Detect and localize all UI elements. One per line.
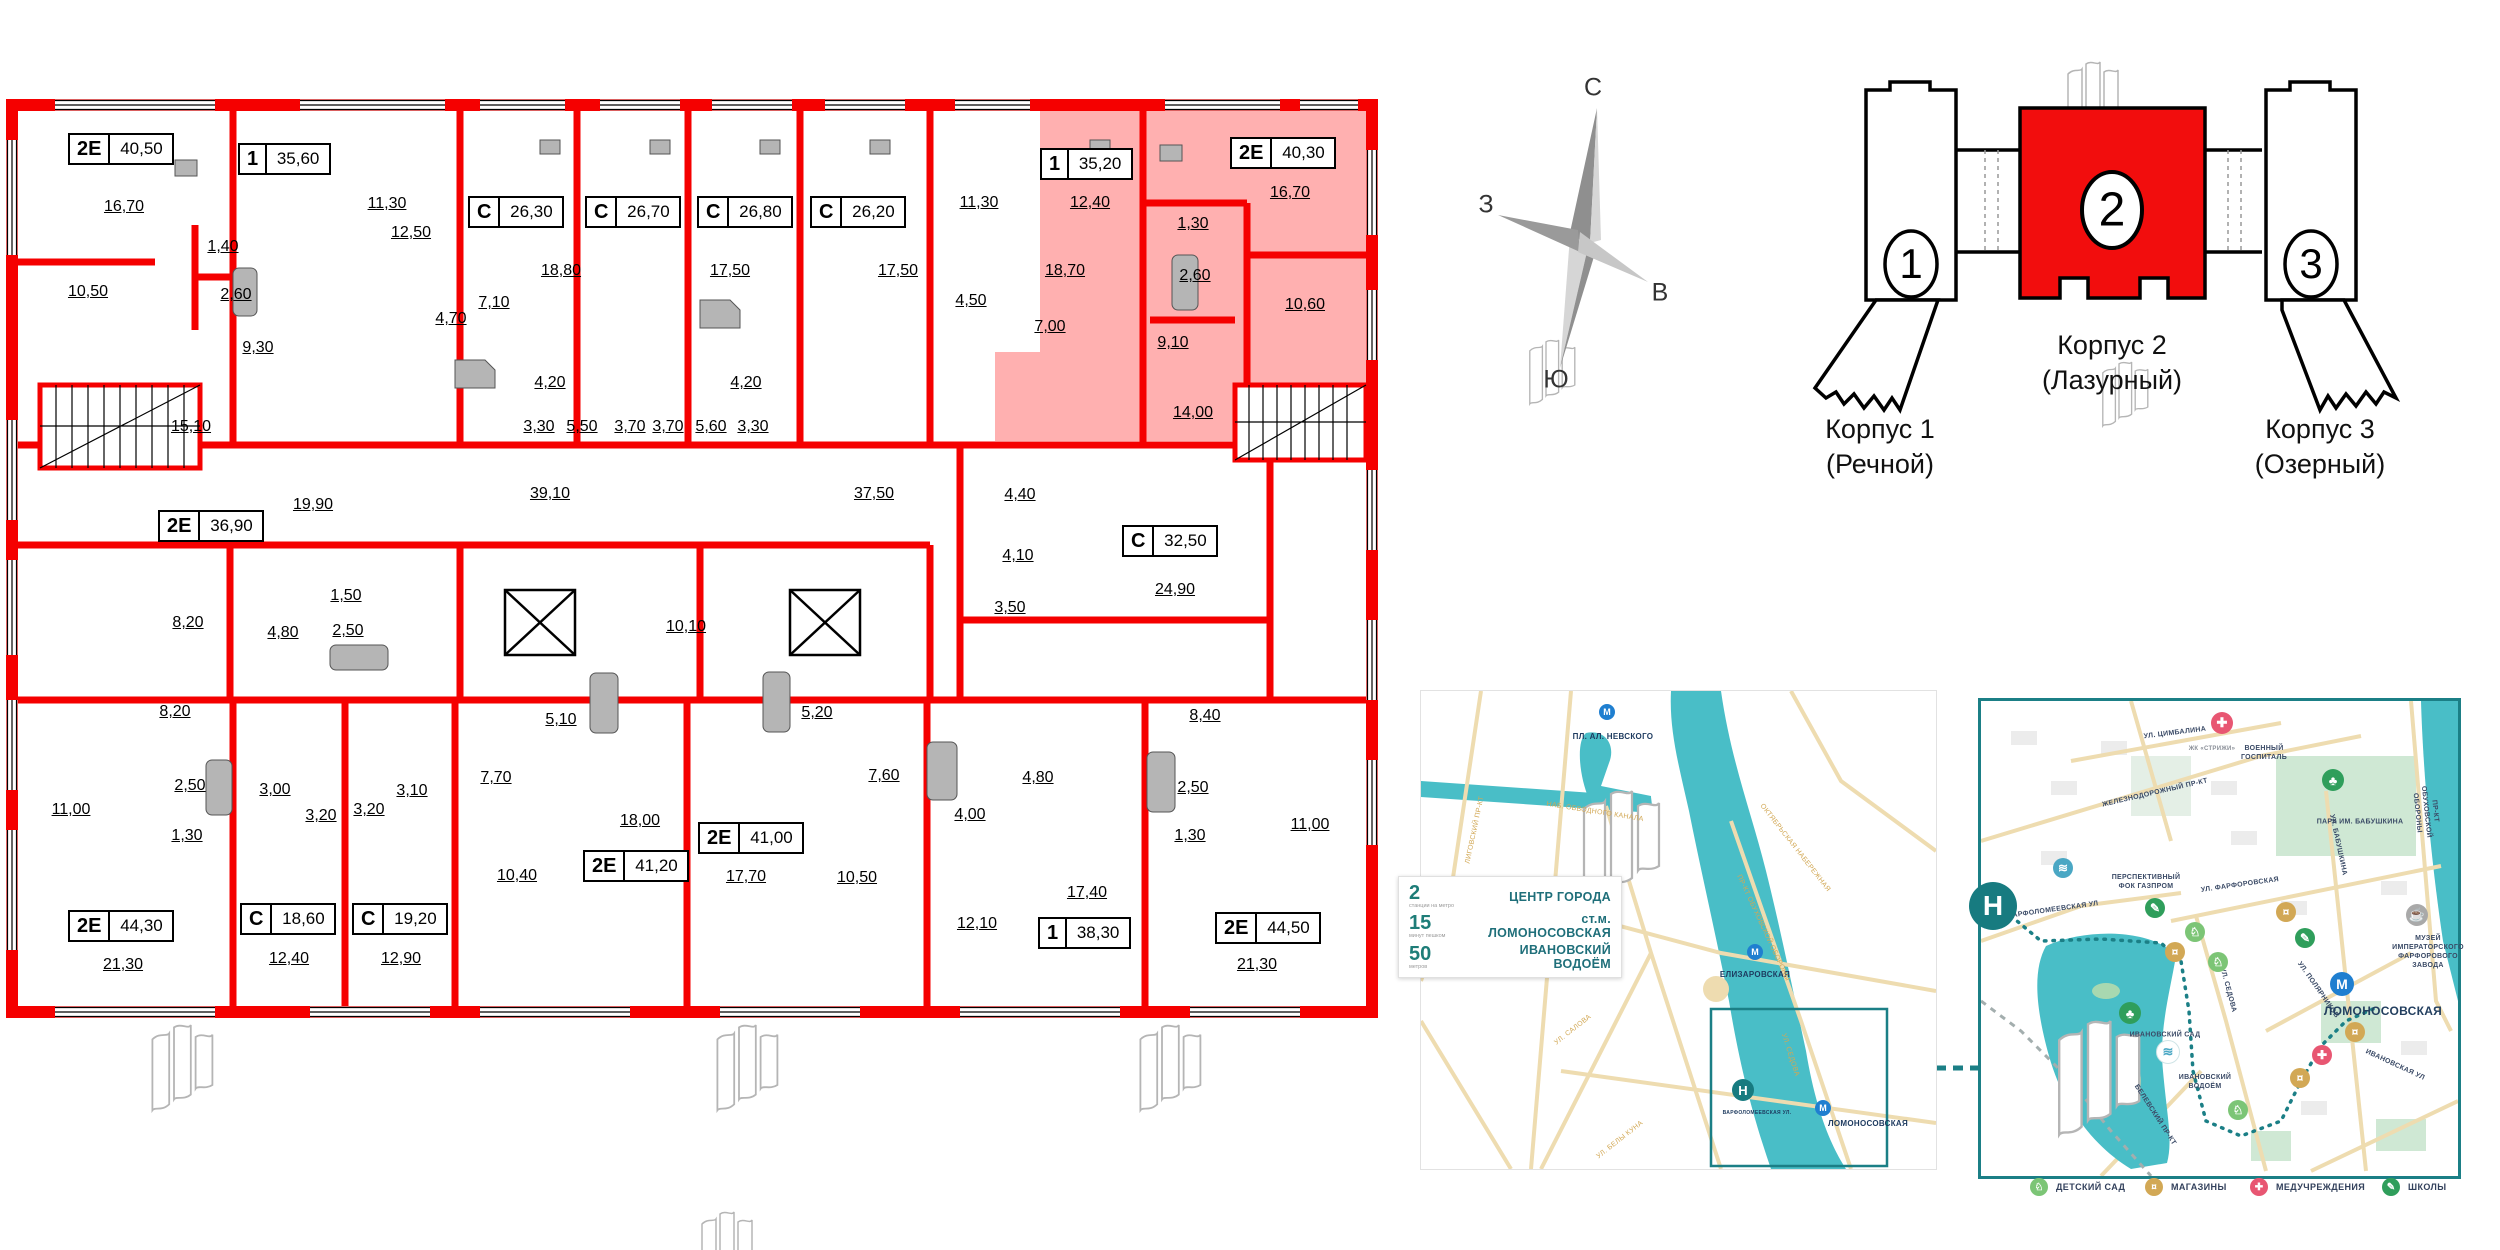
room-area-label: 17,40	[1067, 884, 1107, 902]
unit-tag-С-26,70[interactable]: С26,70	[585, 196, 681, 228]
compass-icon	[1498, 108, 1648, 368]
room-area-label: 5,60	[695, 418, 726, 436]
unit-area: 35,60	[267, 145, 329, 173]
room-area-label: 5,10	[545, 711, 576, 729]
poi-kind-icon[interactable]: ♘	[2185, 922, 2205, 942]
unit-tag-1-35,60[interactable]: 135,60	[238, 143, 331, 175]
poi-med-icon[interactable]: ✚	[2211, 712, 2233, 734]
unit-tag-С-26,20[interactable]: С26,20	[810, 196, 906, 228]
unit-area: 19,20	[384, 905, 446, 933]
room-area-label: 21,30	[103, 956, 143, 974]
legend-label: МЕДУЧРЕЖДЕНИЯ	[2276, 1182, 2365, 1192]
unit-area: 26,20	[842, 198, 904, 226]
map-text: ИВАНОВСКИЙ САД	[2130, 1030, 2201, 1039]
unit-tag-2Е-36,90[interactable]: 2Е36,90	[158, 510, 264, 542]
legend-item-kind: ♘ДЕТСКИЙ САД	[2030, 1178, 2125, 1196]
distance-value: 2	[1409, 883, 1481, 903]
room-area-label: 3,70	[614, 418, 645, 436]
room-area-label: 7,60	[868, 767, 899, 785]
distance-label: ст.м. ЛОМОНОСОВСКАЯ	[1473, 912, 1611, 940]
room-area-label: 5,20	[801, 704, 832, 722]
room-area-label: 18,00	[620, 812, 660, 830]
room-area-label: 3,70	[652, 418, 683, 436]
room-area-label: 9,10	[1157, 334, 1188, 352]
room-area-label: 24,90	[1155, 581, 1195, 599]
unit-tag-2Е-44,30[interactable]: 2Е44,30	[68, 910, 174, 942]
building-1-footprint[interactable]	[1815, 82, 1956, 410]
unit-area: 40,30	[1272, 139, 1334, 167]
legend-item-school: ✎ШКОЛЫ	[2382, 1178, 2446, 1196]
unit-area: 26,80	[729, 198, 791, 226]
unit-tag-2Е-41,20[interactable]: 2Е41,20	[583, 850, 689, 882]
poi-logo-icon[interactable]: Н	[1969, 882, 2017, 930]
poi-shop-icon[interactable]: ¤	[2345, 1022, 2365, 1042]
distance-value: 50	[1409, 944, 1474, 964]
unit-type: С	[699, 198, 729, 226]
unit-type: 2Е	[70, 912, 110, 940]
legend-item-med: ✚МЕДУЧРЕЖДЕНИЯ	[2250, 1178, 2365, 1196]
room-area-label: 1,30	[1177, 215, 1208, 233]
room-area-label: 4,10	[1002, 547, 1033, 565]
unit-area: 26,70	[617, 198, 679, 226]
room-area-label: 21,30	[1237, 956, 1277, 974]
location-info-card: 2 станции на метро ЦЕНТР ГОРОДА 15 минут…	[1398, 876, 1622, 978]
unit-area: 26,30	[500, 198, 562, 226]
room-area-label: 17,70	[726, 868, 766, 886]
unit-area: 35,20	[1069, 150, 1131, 178]
unit-type: С	[587, 198, 617, 226]
poi-shop-icon[interactable]: ¤	[2165, 942, 2185, 962]
room-area-label: 7,10	[478, 294, 509, 312]
distance-unit: станции на метро	[1409, 904, 1481, 910]
unit-area: 18,60	[272, 905, 334, 933]
legend-label: МАГАЗИНЫ	[2171, 1182, 2227, 1192]
room-area-label: 4,80	[1022, 769, 1053, 787]
room-area-label: 2,50	[174, 777, 205, 795]
unit-tag-С-32,50[interactable]: С32,50	[1122, 525, 1218, 557]
room-area-label: 4,40	[1004, 486, 1035, 504]
unit-tag-2Е-40,50[interactable]: 2Е40,50	[68, 133, 174, 165]
room-area-label: 3,50	[994, 599, 1025, 617]
unit-tag-С-26,80[interactable]: С26,80	[697, 196, 793, 228]
room-area-label: 2,50	[332, 622, 363, 640]
staircase-right	[1235, 385, 1366, 460]
poi-pool-icon[interactable]: ≋	[2053, 858, 2073, 878]
unit-type: 2Е	[160, 512, 200, 540]
building-3-footprint[interactable]	[2266, 82, 2396, 410]
room-area-label: 5,50	[566, 418, 597, 436]
compass-east-label: В	[1652, 279, 1669, 308]
room-area-label: 11,00	[52, 801, 91, 819]
poi-tree-icon[interactable]: ♣	[2322, 769, 2344, 791]
unit-tag-2Е-44,50[interactable]: 2Е44,50	[1215, 912, 1321, 944]
building-3-number[interactable]: 3	[2299, 240, 2322, 288]
room-area-label: 12,50	[391, 224, 431, 242]
poi-metro-icon[interactable]: M	[2330, 972, 2354, 996]
room-area-label: 10,60	[1285, 296, 1325, 314]
room-area-label: 7,70	[480, 769, 511, 787]
map-text: ВОЕННЫЙ ГОСПИТАЛЬ	[2241, 744, 2287, 762]
unit-tag-2Е-41,00[interactable]: 2Е41,00	[698, 822, 804, 854]
unit-type: 2Е	[1232, 139, 1272, 167]
room-area-label: 3,30	[523, 418, 554, 436]
unit-tag-С-26,30[interactable]: С26,30	[468, 196, 564, 228]
legend-school-icon: ✎	[2382, 1178, 2400, 1196]
unit-tag-1-38,30[interactable]: 138,30	[1038, 917, 1131, 949]
room-area-label: 12,40	[1070, 194, 1110, 212]
room-area-label: 17,50	[710, 262, 750, 280]
poi-museum-icon[interactable]: ☕	[2406, 904, 2428, 926]
poi-school-icon[interactable]: ✎	[2145, 898, 2165, 918]
map-text: ИВАНОВСКИЙ ВОДОЁМ	[2179, 1073, 2231, 1091]
unit-tag-2Е-40,30[interactable]: 2Е40,30	[1230, 137, 1336, 169]
distance-label: ЦЕНТР ГОРОДА	[1509, 890, 1611, 904]
poi-shop-icon[interactable]: ¤	[2276, 902, 2296, 922]
room-area-label: 8,20	[159, 703, 190, 721]
room-area-label: 12,10	[957, 915, 997, 933]
room-area-label: 1,30	[1174, 827, 1205, 845]
room-area-label: 7,00	[1034, 318, 1065, 336]
building-2-label: Корпус 2(Лазурный)	[2042, 328, 2182, 398]
room-area-label: 18,80	[541, 262, 581, 280]
unit-tag-С-19,20[interactable]: С19,20	[352, 903, 448, 935]
poi-kind-icon[interactable]: ♘	[2208, 952, 2228, 972]
distance-unit: минут пешком	[1409, 934, 1473, 940]
unit-type: 1	[1040, 919, 1067, 947]
info-row: 15 минут пешком ст.м. ЛОМОНОСОВСКАЯ	[1409, 912, 1611, 940]
room-area-label: 18,70	[1045, 262, 1085, 280]
compass-west-label: З	[1478, 191, 1493, 220]
map-text: ПЕРСПЕКТИВНЫЙ ФОК ГАЗПРОМ	[2112, 873, 2181, 891]
room-area-label: 1,30	[171, 827, 202, 845]
poi-metro-icon[interactable]: M	[1815, 1100, 1831, 1116]
unit-area: 44,30	[110, 912, 172, 940]
unit-area: 41,20	[625, 852, 687, 880]
unit-type: С	[354, 905, 384, 933]
legend-item-shop: ¤МАГАЗИНЫ	[2145, 1178, 2227, 1196]
info-row: 2 станции на метро ЦЕНТР ГОРОДА	[1409, 883, 1611, 910]
info-row: 50 метров ИВАНОВСКИЙ ВОДОЁМ	[1409, 943, 1611, 971]
distance-value: 15	[1409, 913, 1473, 933]
room-area-label: 16,70	[1270, 184, 1310, 202]
legend-kind-icon: ♘	[2030, 1178, 2048, 1196]
room-area-label: 11,30	[960, 194, 999, 212]
unit-type: С	[1124, 527, 1154, 555]
unit-area: 38,30	[1067, 919, 1129, 947]
room-area-label: 4,20	[730, 374, 761, 392]
map-text: ВАРФОЛОМЕЕВСКАЯ УЛ.	[1723, 1110, 1792, 1117]
poi-metro-icon[interactable]: M	[1599, 704, 1615, 720]
room-area-label: 11,00	[1291, 816, 1330, 834]
compass-north-label: С	[1584, 74, 1602, 103]
room-area-label: 14,00	[1173, 404, 1213, 422]
legend-label: ШКОЛЫ	[2408, 1182, 2446, 1192]
map-text: ПЛ. АЛ. НЕВСКОГО	[1573, 732, 1654, 742]
room-area-label: 9,30	[242, 339, 273, 357]
room-area-label: 8,40	[1189, 707, 1220, 725]
map-text: МУЗЕЙ ИМПЕРАТОРСКОГО ФАРФОРОВОГО ЗАВОДА	[2392, 934, 2464, 970]
unit-tag-С-18,60[interactable]: С18,60	[240, 903, 336, 935]
room-area-label: 3,20	[305, 807, 336, 825]
room-area-label: 3,00	[259, 781, 290, 799]
room-area-label: 10,10	[666, 618, 706, 636]
room-area-label: 16,70	[104, 198, 144, 216]
unit-area: 40,50	[110, 135, 172, 163]
legend-med-icon: ✚	[2250, 1178, 2268, 1196]
poi-pond-icon[interactable]: ≋	[2156, 1040, 2180, 1064]
map-text: ЛОМОНОСОВСКАЯ	[2324, 1004, 2442, 1020]
unit-type: С	[470, 198, 500, 226]
unit-area: 32,50	[1154, 527, 1216, 555]
room-area-label: 4,00	[954, 806, 985, 824]
unit-type: 2Е	[70, 135, 110, 163]
room-area-label: 39,10	[530, 485, 570, 503]
legend-shop-icon: ¤	[2145, 1178, 2163, 1196]
poi-tree-icon[interactable]: ♣	[2119, 1002, 2141, 1024]
room-area-label: 3,30	[737, 418, 768, 436]
unit-type: 1	[240, 145, 267, 173]
building-1-number[interactable]: 1	[1899, 240, 1922, 288]
unit-type: С	[812, 198, 842, 226]
room-area-label: 19,90	[293, 496, 333, 514]
poi-med-icon[interactable]: ✚	[2312, 1045, 2332, 1065]
room-area-label: 4,50	[955, 292, 986, 310]
building-2-number[interactable]: 2	[2099, 183, 2126, 238]
unit-type: 2Е	[585, 852, 625, 880]
room-area-label: 4,80	[267, 624, 298, 642]
room-area-label: 10,40	[497, 867, 537, 885]
compass-south-label: Ю	[1543, 366, 1568, 395]
room-area-label: 10,50	[837, 869, 877, 887]
poi-logo-icon[interactable]: Н	[1732, 1079, 1754, 1101]
room-area-label: 1,40	[207, 238, 238, 256]
unit-type: 2Е	[1217, 914, 1257, 942]
room-area-label: 3,10	[396, 782, 427, 800]
room-area-label: 1,50	[330, 587, 361, 605]
poi-school-icon[interactable]: ✎	[2295, 928, 2315, 948]
map-text: ЖК «СТРИЖИ»	[2189, 746, 2236, 754]
room-area-label: 2,60	[1179, 267, 1210, 285]
building-1-label: Корпус 1(Речной)	[1825, 412, 1935, 482]
room-area-label: 15,10	[171, 418, 211, 436]
map-text: ЛОМОНОСОВСКАЯ	[1828, 1119, 1908, 1129]
unit-area: 41,00	[740, 824, 802, 852]
legend-label: ДЕТСКИЙ САД	[2056, 1182, 2125, 1192]
unit-tag-1-35,20[interactable]: 135,20	[1040, 148, 1133, 180]
distance-label: ИВАНОВСКИЙ ВОДОЁМ	[1474, 943, 1611, 971]
room-area-label: 3,20	[353, 801, 384, 819]
room-area-label: 12,40	[269, 950, 309, 968]
poi-metro-icon[interactable]: M	[1747, 944, 1763, 960]
unit-type: С	[242, 905, 272, 933]
room-area-label: 2,50	[1177, 779, 1208, 797]
room-area-label: 2,60	[220, 286, 251, 304]
room-area-label: 11,30	[368, 195, 407, 213]
room-area-label: 4,70	[435, 310, 466, 328]
room-area-label: 4,20	[534, 374, 565, 392]
unit-type: 2Е	[700, 824, 740, 852]
building-3-label: Корпус 3(Озерный)	[2255, 412, 2386, 482]
unit-area: 36,90	[200, 512, 262, 540]
room-area-label: 37,50	[854, 485, 894, 503]
detail-map[interactable]	[1978, 698, 2461, 1179]
poi-shop-icon[interactable]: ¤	[2290, 1068, 2310, 1088]
room-area-label: 12,90	[381, 950, 421, 968]
room-area-label: 8,20	[172, 614, 203, 632]
unit-area: 44,50	[1257, 914, 1319, 942]
unit-type: 1	[1042, 150, 1069, 178]
page: 2 станции на метро ЦЕНТР ГОРОДА 15 минут…	[0, 0, 2500, 1250]
room-area-label: 10,50	[68, 283, 108, 301]
room-area-label: 17,50	[878, 262, 918, 280]
poi-kind-icon[interactable]: ♘	[2228, 1100, 2248, 1120]
distance-unit: метров	[1409, 965, 1474, 971]
